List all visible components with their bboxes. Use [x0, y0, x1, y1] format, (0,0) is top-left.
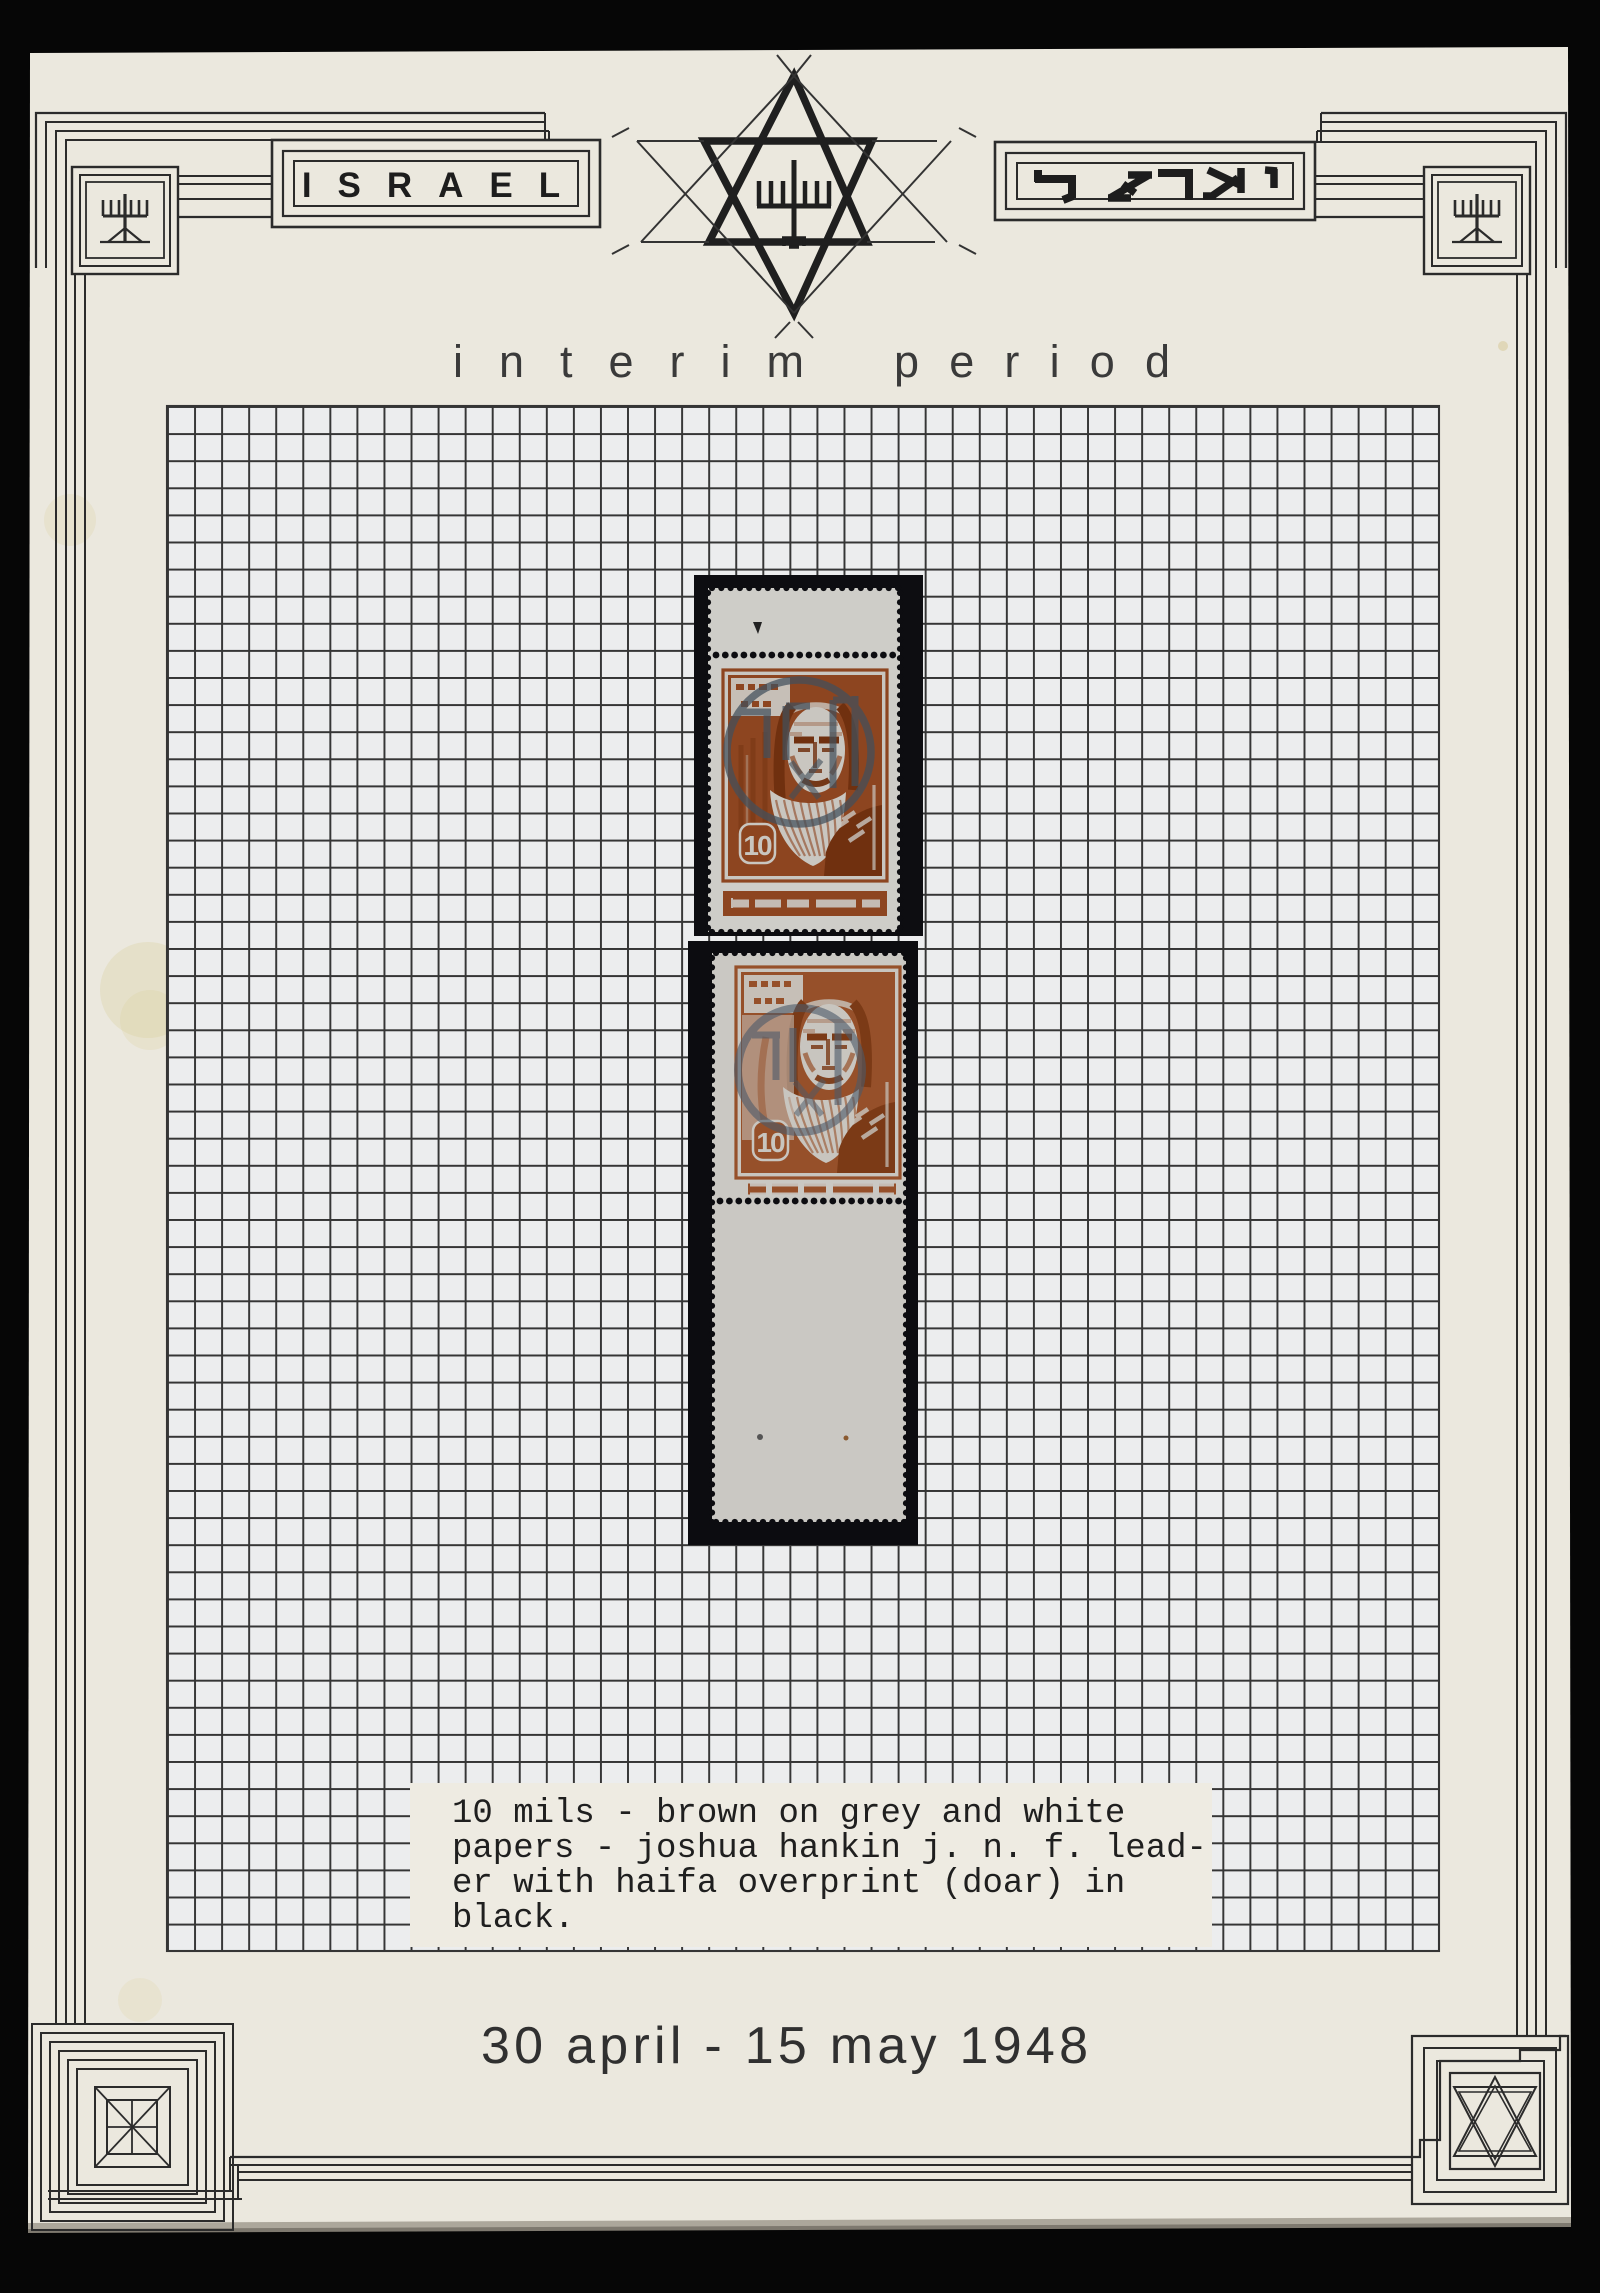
svg-text:30 april - 15 may 1948: 30 april - 15 may 1948	[481, 2017, 1088, 2075]
svg-text:ISRAEL: ISRAEL	[302, 166, 586, 205]
svg-text:10 mils - brown on grey and wh: 10 mils - brown on grey and white	[452, 1795, 1125, 1833]
svg-text:er with haifa overprint (doar): er with haifa overprint (doar) in	[452, 1865, 1125, 1903]
svg-text:black.: black.	[452, 1900, 574, 1938]
svg-text:10: 10	[743, 830, 772, 861]
svg-text:papers - joshua hankin j. n. f: papers - joshua hankin j. n. f. lead-	[452, 1830, 1207, 1868]
